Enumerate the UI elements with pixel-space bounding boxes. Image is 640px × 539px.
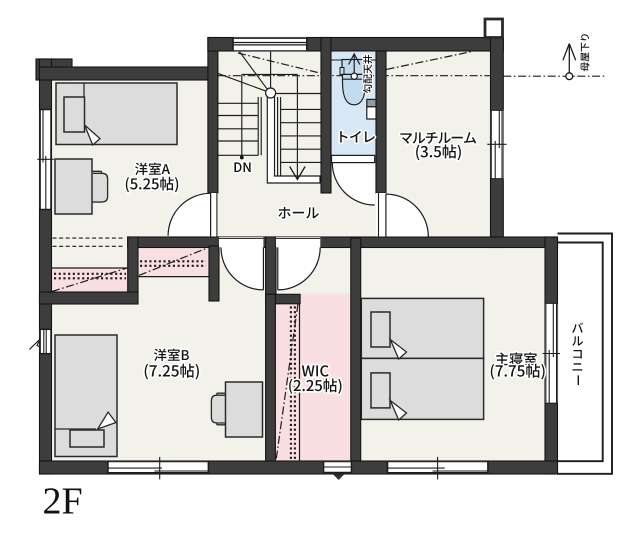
svg-text:2F: 2F [43, 481, 83, 523]
